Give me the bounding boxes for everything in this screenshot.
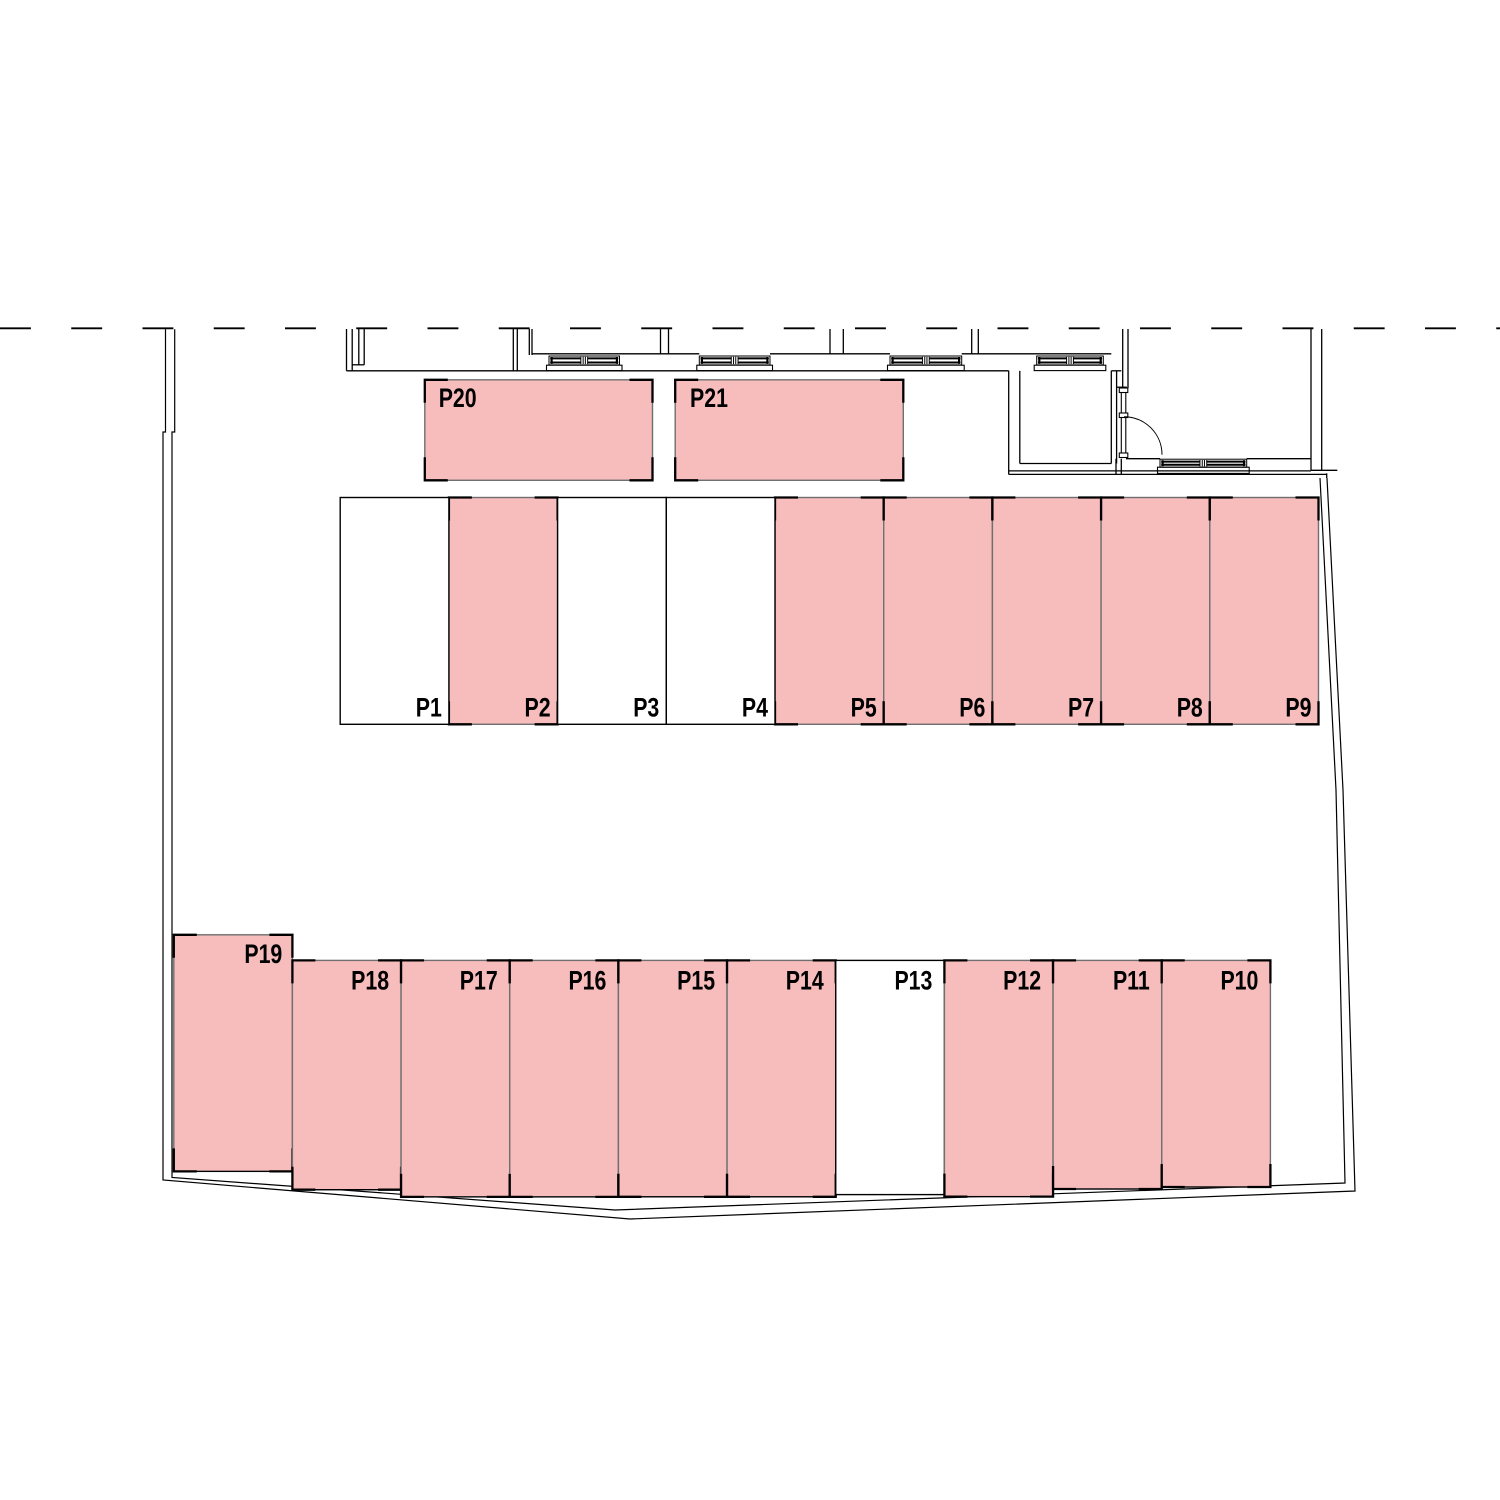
svg-text:P3: P3 bbox=[633, 693, 659, 723]
svg-text:P16: P16 bbox=[568, 966, 606, 996]
svg-text:P4: P4 bbox=[742, 693, 768, 723]
svg-text:P17: P17 bbox=[460, 966, 498, 996]
svg-text:P18: P18 bbox=[351, 966, 389, 996]
svg-text:P15: P15 bbox=[677, 966, 715, 996]
svg-text:P12: P12 bbox=[1003, 966, 1041, 996]
svg-text:P19: P19 bbox=[244, 940, 282, 970]
svg-text:P20: P20 bbox=[439, 384, 477, 414]
svg-text:P6: P6 bbox=[959, 693, 985, 723]
svg-text:P14: P14 bbox=[786, 966, 824, 996]
svg-text:P5: P5 bbox=[851, 693, 877, 723]
svg-text:P7: P7 bbox=[1068, 693, 1094, 723]
svg-text:P1: P1 bbox=[416, 693, 442, 723]
svg-text:P8: P8 bbox=[1177, 693, 1203, 723]
svg-text:P13: P13 bbox=[894, 966, 932, 996]
svg-text:P9: P9 bbox=[1285, 693, 1311, 723]
svg-text:P10: P10 bbox=[1220, 966, 1258, 996]
svg-text:P11: P11 bbox=[1113, 966, 1150, 996]
svg-text:P21: P21 bbox=[690, 384, 728, 414]
svg-text:P2: P2 bbox=[525, 693, 551, 723]
